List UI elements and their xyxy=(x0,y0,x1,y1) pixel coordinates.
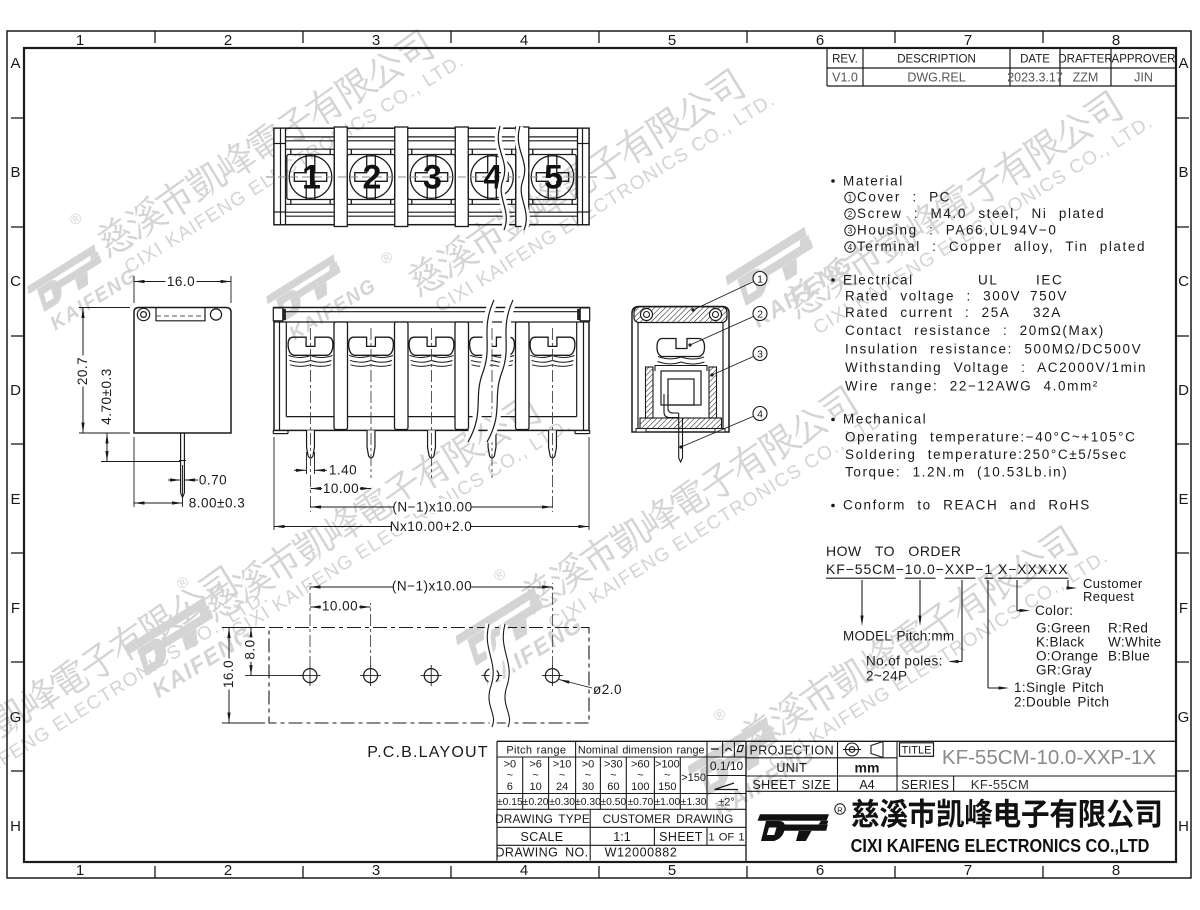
svg-text:ø2.0: ø2.0 xyxy=(593,682,622,697)
svg-text:Withstanding Voltage : AC2000V: Withstanding Voltage : AC2000V/1min xyxy=(845,360,1147,375)
svg-text:1:1: 1:1 xyxy=(613,830,630,844)
svg-text:2: 2 xyxy=(224,862,232,879)
svg-text:8: 8 xyxy=(1112,32,1120,49)
svg-text:H: H xyxy=(10,818,21,835)
svg-text:Torque: 1.2N.m (10.53Lb.in): Torque: 1.2N.m (10.53Lb.in) xyxy=(845,465,1068,480)
svg-text:(N−1)x10.00: (N−1)x10.00 xyxy=(392,500,472,515)
svg-text:16.0: 16.0 xyxy=(221,660,236,688)
svg-text:5: 5 xyxy=(668,862,676,879)
svg-text:B: B xyxy=(1178,164,1188,181)
svg-text:H: H xyxy=(1178,818,1189,835)
svg-text:2023.3.17: 2023.3.17 xyxy=(1007,71,1063,85)
svg-text:±0.30: ±0.30 xyxy=(549,797,575,808)
svg-text:3: 3 xyxy=(848,226,853,235)
svg-text:TITLE: TITLE xyxy=(902,745,932,757)
svg-text:3: 3 xyxy=(372,32,380,49)
svg-text:8.00±0.3: 8.00±0.3 xyxy=(189,496,245,511)
svg-text:~: ~ xyxy=(610,770,616,782)
svg-text:3: 3 xyxy=(423,159,442,197)
svg-text:10.00: 10.00 xyxy=(322,599,358,614)
svg-text:Nx10.00+2.0: Nx10.00+2.0 xyxy=(390,519,472,534)
svg-text:±0.15: ±0.15 xyxy=(497,797,523,808)
svg-text:O:Orange: O:Orange xyxy=(1036,649,1098,664)
svg-text:4: 4 xyxy=(848,243,853,252)
svg-text:DATE: DATE xyxy=(1020,54,1050,66)
svg-text:100: 100 xyxy=(631,781,649,793)
svg-text:F: F xyxy=(11,600,20,617)
svg-text:E: E xyxy=(1178,491,1188,508)
svg-text:F: F xyxy=(1179,600,1188,617)
svg-text:±1.00: ±1.00 xyxy=(654,797,680,808)
svg-text:1: 1 xyxy=(848,193,853,202)
svg-text:SHEET: SHEET xyxy=(659,830,703,844)
svg-text:A: A xyxy=(10,55,20,72)
svg-text:ZZM: ZZM xyxy=(1073,71,1099,85)
svg-text:KF-55CM: KF-55CM xyxy=(971,777,1029,792)
svg-text:10.00: 10.00 xyxy=(323,481,359,496)
svg-text:Rated current : 25A: Rated current : 25A xyxy=(845,305,1010,320)
svg-text:1: 1 xyxy=(302,159,321,197)
svg-text:30: 30 xyxy=(582,781,594,793)
svg-text:B: B xyxy=(10,164,20,181)
svg-text:~: ~ xyxy=(637,770,643,782)
svg-text:DESCRIPTION: DESCRIPTION xyxy=(897,54,976,66)
svg-text:6: 6 xyxy=(507,781,513,793)
svg-text:60: 60 xyxy=(607,781,619,793)
svg-text:SERIES: SERIES xyxy=(901,778,949,792)
svg-text:7: 7 xyxy=(964,862,972,879)
svg-text:GR:Gray: GR:Gray xyxy=(1036,663,1092,678)
svg-text:2: 2 xyxy=(363,159,382,197)
svg-text:C: C xyxy=(1178,273,1189,290)
svg-text:16.0: 16.0 xyxy=(167,274,195,289)
svg-text:CUSTOMER DRAWING: CUSTOMER DRAWING xyxy=(603,812,734,826)
svg-text:±0.20: ±0.20 xyxy=(523,797,549,808)
svg-text:5: 5 xyxy=(668,32,676,49)
svg-text:8: 8 xyxy=(1112,862,1120,879)
svg-text:W:White: W:White xyxy=(1108,635,1162,650)
svg-text:~: ~ xyxy=(532,770,538,782)
svg-text:0.1/10: 0.1/10 xyxy=(710,759,744,773)
svg-text:150: 150 xyxy=(658,781,676,793)
svg-text:DRAWING TYPE: DRAWING TYPE xyxy=(495,812,590,826)
svg-text:D: D xyxy=(10,382,21,399)
svg-text:JIN: JIN xyxy=(1134,71,1153,85)
svg-text:KF-55CM-10.0-XXP-1X: KF-55CM-10.0-XXP-1X xyxy=(942,746,1157,769)
svg-text:Operating temperature:−40°C~+1: Operating temperature:−40°C~+105°C xyxy=(845,430,1136,445)
svg-text:Contact resistance : 20mΩ(Max): Contact resistance : 20mΩ(Max) xyxy=(845,323,1105,338)
svg-text:6: 6 xyxy=(816,32,824,49)
svg-text:~: ~ xyxy=(559,770,565,782)
svg-text:~: ~ xyxy=(585,770,591,782)
svg-text:~: ~ xyxy=(664,770,670,782)
svg-text:CIXI KAIFENG ELECTRONICS CO.,L: CIXI KAIFENG ELECTRONICS CO.,LTD xyxy=(851,835,1150,856)
svg-text:Screw : M4.0 steel, Ni plated: Screw : M4.0 steel, Ni plated xyxy=(857,206,1105,221)
svg-text:A: A xyxy=(1178,55,1188,72)
svg-text:1.40: 1.40 xyxy=(329,463,357,478)
svg-text:Mechanical: Mechanical xyxy=(843,412,927,427)
svg-text:2: 2 xyxy=(848,210,853,219)
svg-text:SHEET SIZE: SHEET SIZE xyxy=(752,778,831,792)
svg-text:1:Single Pitch: 1:Single Pitch xyxy=(1014,680,1104,695)
svg-text:No.of poles:: No.of poles: xyxy=(866,654,943,669)
svg-text:IEC: IEC xyxy=(1036,273,1063,288)
svg-text:Color:: Color: xyxy=(1035,603,1073,618)
svg-text:2~24P: 2~24P xyxy=(866,669,907,684)
svg-text:Rated voltage : 300V: Rated voltage : 300V xyxy=(845,289,1021,304)
svg-text:4.70±0.3: 4.70±0.3 xyxy=(99,368,114,424)
svg-text:G:Green: G:Green xyxy=(1036,621,1091,636)
svg-text:~: ~ xyxy=(507,770,513,782)
svg-text:Request: Request xyxy=(1083,589,1134,604)
svg-text:DRAWING NO.: DRAWING NO. xyxy=(495,846,588,860)
svg-text:Housing : PA66,UL94V−0: Housing : PA66,UL94V−0 xyxy=(857,223,1057,238)
svg-text:±0.50: ±0.50 xyxy=(600,797,626,808)
svg-text:E: E xyxy=(10,491,20,508)
svg-text:HOW TO ORDER: HOW TO ORDER xyxy=(826,543,962,559)
svg-text:4: 4 xyxy=(520,862,528,879)
svg-text:Wire range: 22−12AWG 4.0mm²: Wire range: 22−12AWG 4.0mm² xyxy=(845,379,1099,394)
svg-text:24: 24 xyxy=(556,781,568,793)
svg-text:6: 6 xyxy=(816,862,824,879)
svg-text:Nominal dimension range: Nominal dimension range xyxy=(578,745,705,757)
svg-text:Material: Material xyxy=(843,174,904,189)
svg-text:4: 4 xyxy=(757,408,763,420)
svg-text:G: G xyxy=(1178,709,1190,726)
svg-text:D: D xyxy=(1178,382,1189,399)
svg-text:(N−1)x10.00: (N−1)x10.00 xyxy=(392,579,472,594)
svg-text:PROJECTION: PROJECTION xyxy=(749,744,834,758)
svg-text:R: R xyxy=(837,805,843,814)
svg-text:20.7: 20.7 xyxy=(75,357,90,385)
svg-text:±0.30: ±0.30 xyxy=(575,797,601,808)
svg-text:2:Double Pitch: 2:Double Pitch xyxy=(1014,695,1109,710)
svg-text:C: C xyxy=(10,273,21,290)
svg-text:1: 1 xyxy=(76,32,84,49)
svg-text:Soldering temperature:250°C±5/: Soldering temperature:250°C±5/5sec xyxy=(845,447,1128,462)
svg-text:mm: mm xyxy=(855,760,880,776)
svg-text:±0.70: ±0.70 xyxy=(627,797,653,808)
svg-text:5: 5 xyxy=(544,159,563,197)
svg-text:32A: 32A xyxy=(1033,305,1062,320)
svg-text:Insulation resistance: 500MΩ/D: Insulation resistance: 500MΩ/DC500V xyxy=(845,342,1142,357)
svg-text:Cover : PC: Cover : PC xyxy=(857,190,951,205)
svg-text:±1.30: ±1.30 xyxy=(681,797,707,808)
svg-text:UL: UL xyxy=(978,273,998,288)
svg-text:2: 2 xyxy=(224,32,232,49)
svg-text:DRAFTER: DRAFTER xyxy=(1058,54,1112,66)
svg-text:10: 10 xyxy=(530,781,542,793)
svg-text:Electrical: Electrical xyxy=(843,273,914,288)
svg-text:UNIT: UNIT xyxy=(776,761,807,775)
svg-text:8.0: 8.0 xyxy=(243,639,258,659)
svg-text:0.70: 0.70 xyxy=(199,473,227,488)
svg-text:3: 3 xyxy=(372,862,380,879)
svg-text:750V: 750V xyxy=(1030,289,1068,304)
svg-text:V1.0: V1.0 xyxy=(832,71,858,85)
svg-text:Conform to REACH and RoHS: Conform to REACH and RoHS xyxy=(843,498,1091,513)
svg-text:Terminal : Copper alloy, Tin p: Terminal : Copper alloy, Tin plated xyxy=(857,239,1146,254)
svg-text:APPROVER: APPROVER xyxy=(1112,54,1176,66)
svg-text:>150: >150 xyxy=(681,772,706,784)
svg-text:R:Red: R:Red xyxy=(1108,621,1148,636)
svg-text:W12000882: W12000882 xyxy=(605,846,678,860)
svg-text:1: 1 xyxy=(76,862,84,879)
svg-text:3: 3 xyxy=(757,348,763,360)
svg-text:7: 7 xyxy=(964,32,972,49)
svg-text:2: 2 xyxy=(757,308,763,320)
svg-text:MODEL Pitch:mm: MODEL Pitch:mm xyxy=(843,629,954,644)
svg-text:K:Black: K:Black xyxy=(1036,635,1085,650)
svg-text:4: 4 xyxy=(520,32,528,49)
svg-text:P.C.B.LAYOUT: P.C.B.LAYOUT xyxy=(367,744,488,761)
svg-text:G: G xyxy=(10,709,22,726)
svg-text:1: 1 xyxy=(757,273,763,285)
svg-text:REV.: REV. xyxy=(832,54,858,66)
svg-text:DWG.REL: DWG.REL xyxy=(907,71,965,85)
svg-text:B:Blue: B:Blue xyxy=(1108,649,1150,664)
svg-text:Pitch range: Pitch range xyxy=(506,745,566,757)
svg-text:±2°: ±2° xyxy=(718,797,735,809)
svg-text:1 OF 1: 1 OF 1 xyxy=(708,832,744,844)
svg-text:A4: A4 xyxy=(859,778,874,792)
svg-text:KF−55CM−10.0−XXP−1 X−XXXXX: KF−55CM−10.0−XXP−1 X−XXXXX xyxy=(826,561,1068,577)
svg-text:SCALE: SCALE xyxy=(521,830,564,844)
